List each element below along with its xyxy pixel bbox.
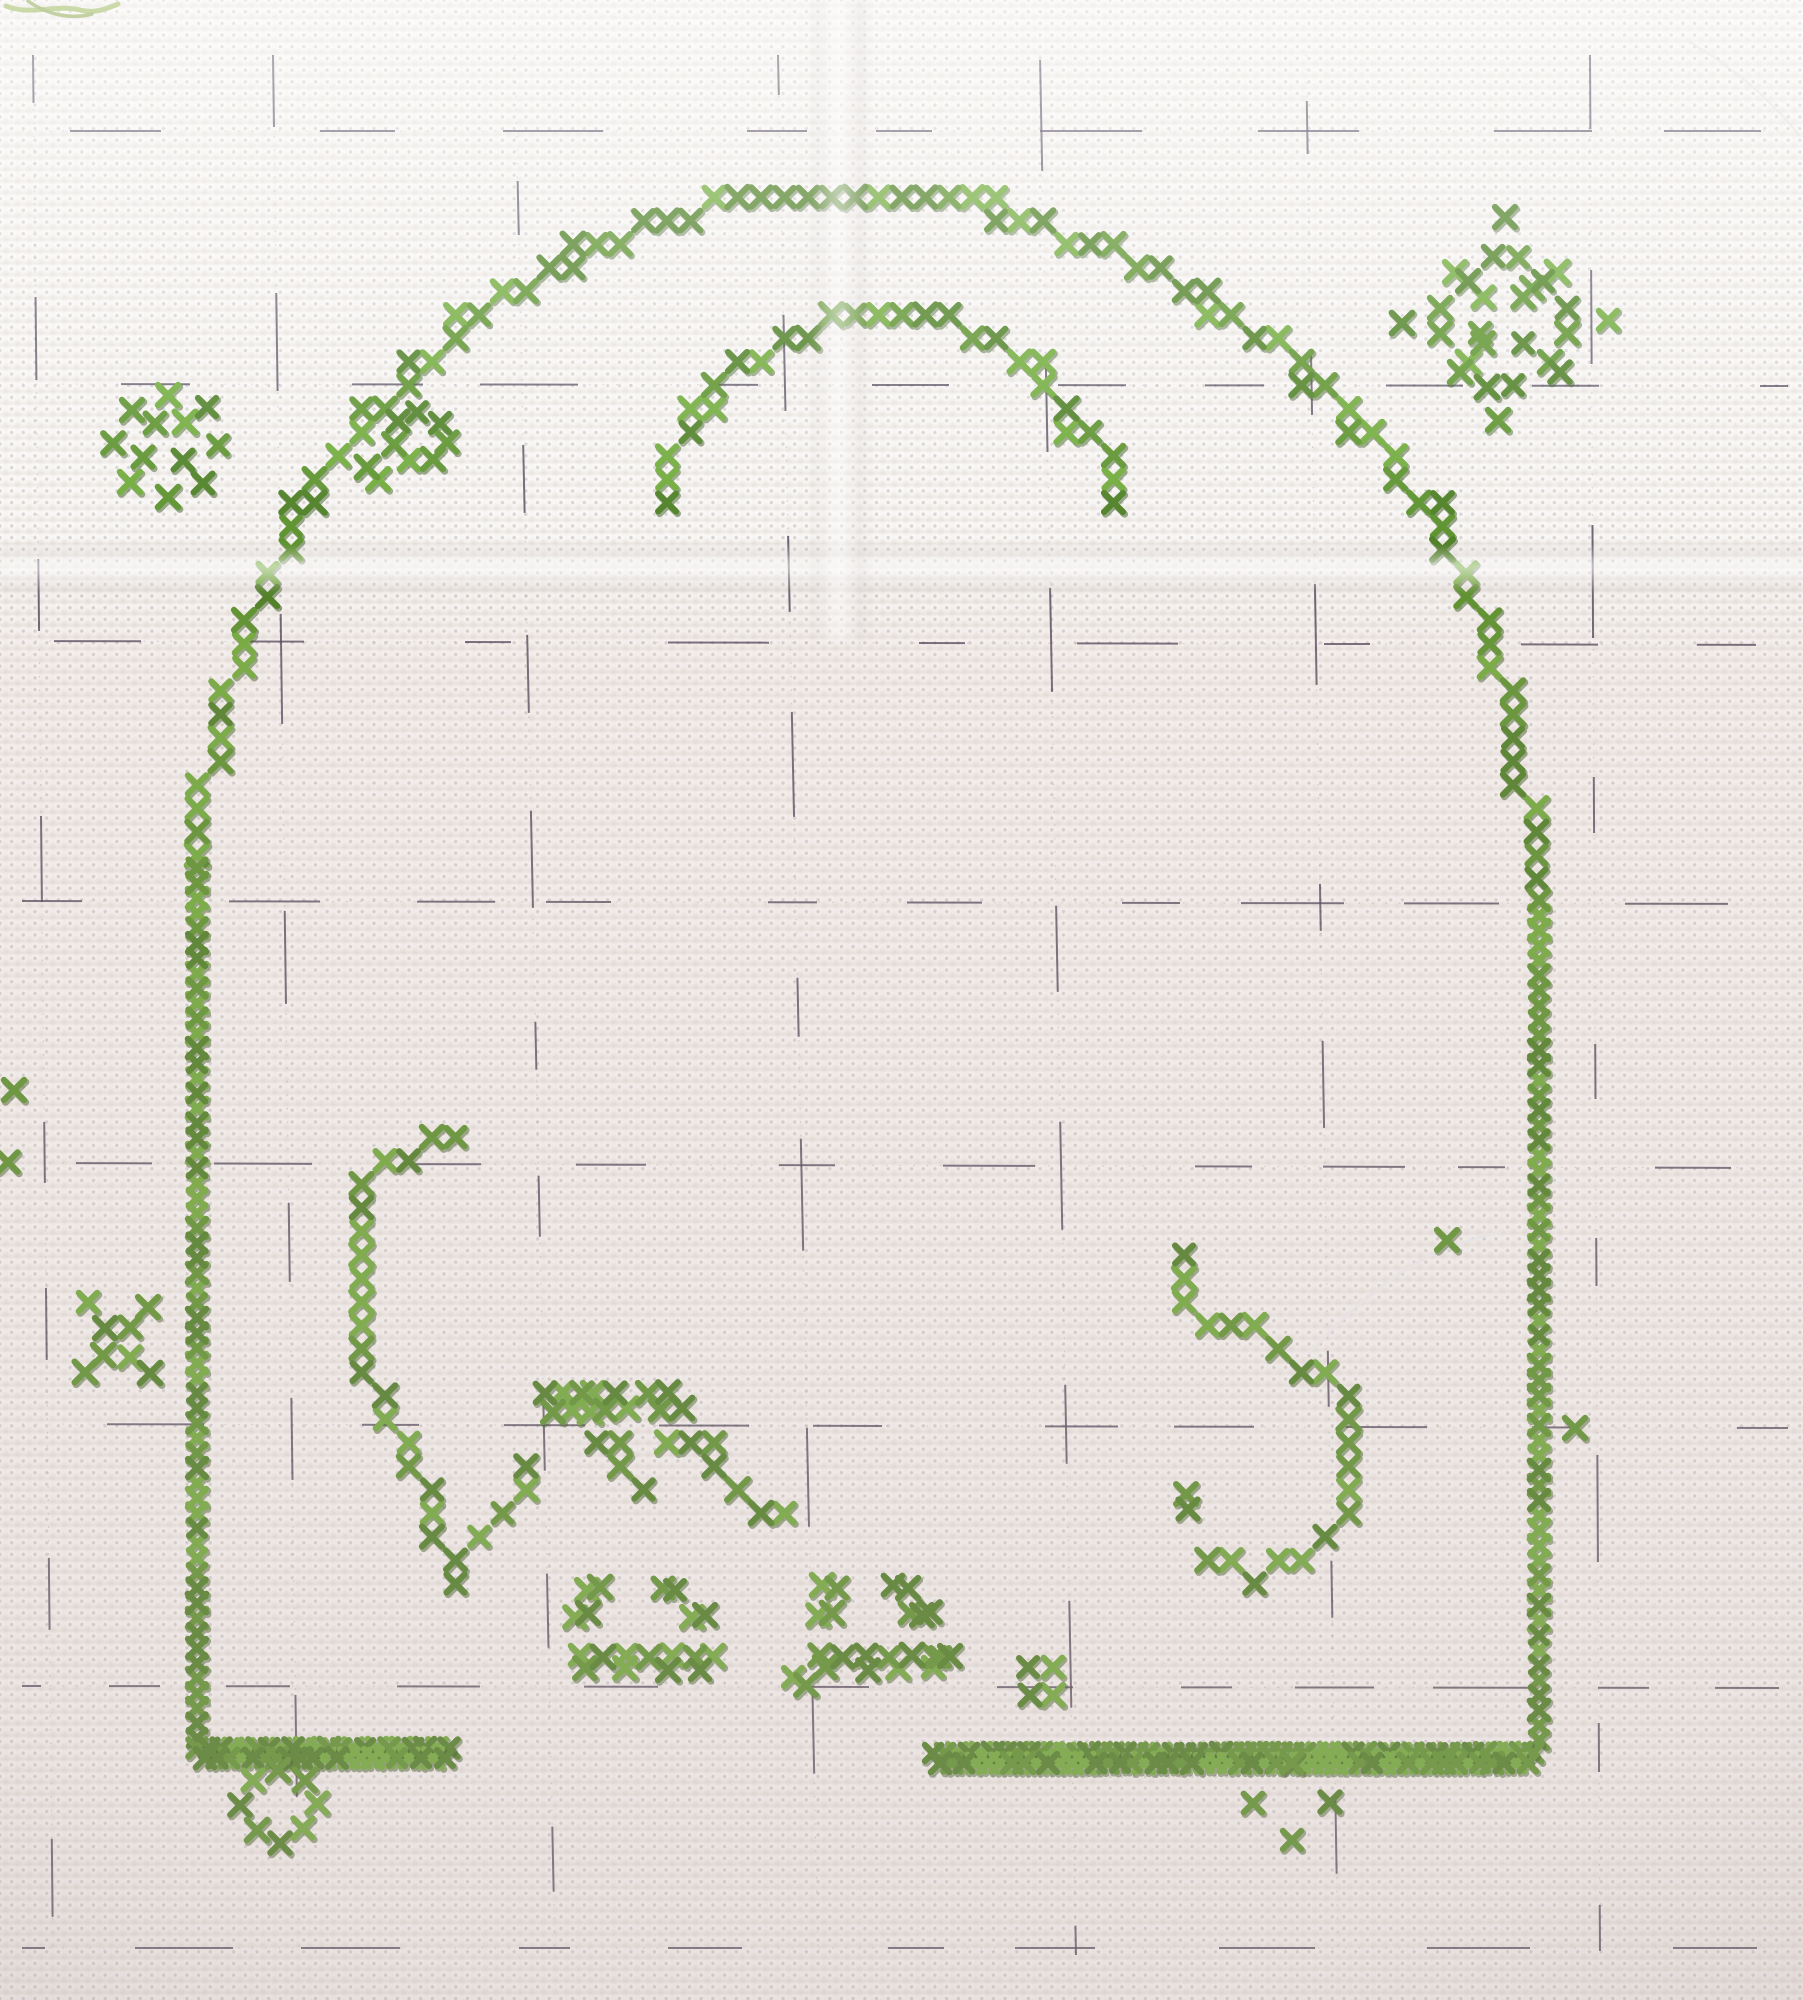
motif-bottom-right-line-2 [931,1754,1538,1775]
motif-left-curl [351,1127,537,1595]
motif-snowflake-top-left [103,385,228,510]
motif-bottom-left-line-2 [196,1749,455,1770]
white-thread-corner [1690,42,1800,136]
motif-hook-pair [1176,1484,1199,1521]
motif-ring-bottom-left [230,1760,328,1855]
motif-right-curl [1174,1246,1360,1595]
motif-center-right-piece [657,1432,795,1525]
motif-left-leg [188,860,208,1749]
cross-stitch-photo [0,0,1803,2000]
motif-center-ridge [587,1433,654,1501]
embroidery-canvas [0,0,1803,2000]
motif-inner-arch [658,304,1125,514]
green-cross-stitches [0,187,1619,1855]
motif-comb-right [784,1575,962,1697]
motif-center-block [536,1382,694,1424]
motif-square-bottom-center [1019,1658,1065,1708]
motif-edge-left-strays [0,1080,26,1174]
motif-star-right-lower [1565,1418,1587,1440]
motif-outer-arch-curve [187,187,1548,890]
green-tail-1 [6,4,118,11]
motif-comb-left [565,1577,725,1683]
white-thread-right [1310,1232,1500,1352]
motif-right-leg [1530,891,1550,1750]
motif-floret-left [75,1293,162,1386]
motif-snowflake-top-right [1392,207,1619,432]
